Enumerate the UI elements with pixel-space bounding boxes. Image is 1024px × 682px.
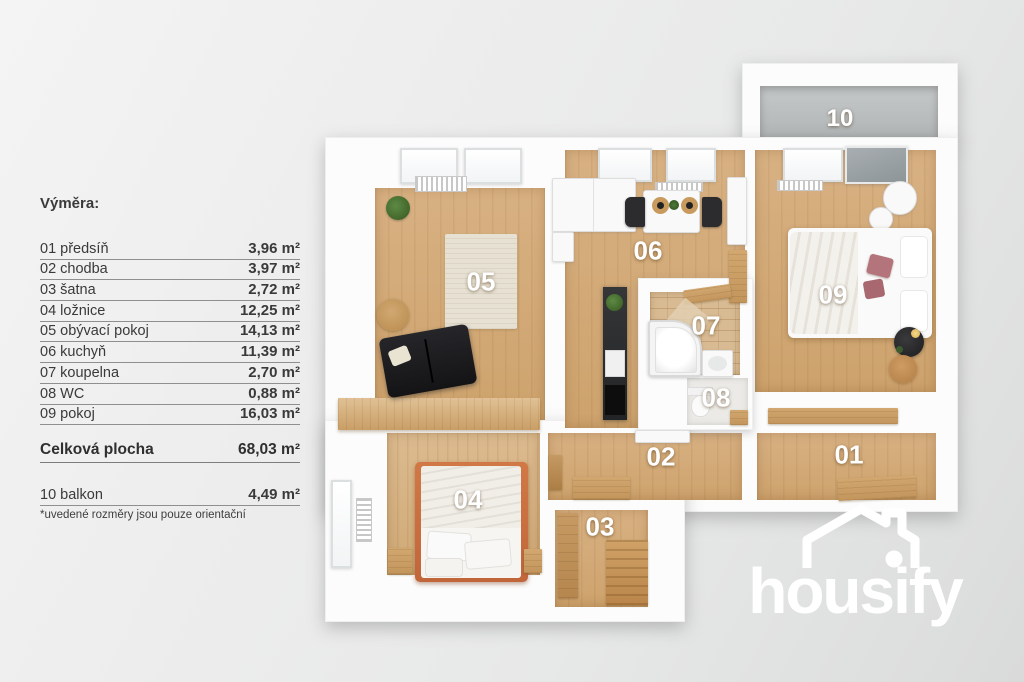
area-legend: Výměra: 01 předsíň3,96 m² 02 chodba3,97 … — [40, 196, 300, 521]
bedroom04-window — [331, 480, 352, 568]
side-table-living — [377, 299, 409, 331]
room-label-04: 04 — [454, 485, 483, 516]
sofa-seat-line — [424, 339, 434, 383]
room-label-08: 08 — [702, 383, 731, 414]
plant-09 — [896, 346, 903, 353]
room-name: 07 koupelna — [40, 365, 119, 381]
kitchen-cabinet-small — [552, 232, 574, 262]
plate-left — [657, 202, 664, 209]
legend-footnote: *uvedené rozměry jsou pouze orientační — [40, 509, 300, 521]
kitchen-cooktop — [605, 385, 625, 415]
hall02-doormat — [573, 477, 630, 499]
living-radiator — [415, 176, 467, 192]
nightstand-04-right — [524, 549, 542, 573]
room-label-10: 10 — [827, 105, 854, 133]
bedroom09-doormat — [768, 408, 898, 424]
bed-09-pillow-top — [900, 236, 928, 278]
room-area: 16,03 m² — [240, 405, 300, 422]
living-window-right — [464, 148, 522, 184]
bed-04-mattress — [421, 466, 521, 578]
legend-row-09: 09 pokoj16,03 m² — [40, 405, 300, 426]
sofa-pillow — [387, 345, 412, 367]
bedroom04-radiator — [356, 498, 372, 542]
kitchen-tall-cabinet — [727, 177, 747, 245]
wc-floor-wood-strip — [730, 410, 748, 425]
room-name: 03 šatna — [40, 282, 96, 298]
cabinet-divider — [593, 179, 594, 231]
plant-living — [386, 196, 410, 220]
room-name: 04 ložnice — [40, 303, 105, 319]
bed-09-pillow-bottom — [900, 290, 928, 332]
housify-wordmark: housify — [727, 559, 983, 623]
room-name: 02 chodba — [40, 261, 108, 277]
closet03-wardrobe — [558, 513, 578, 598]
balcony-door-glass — [845, 146, 908, 184]
hall02-door-panel — [549, 455, 562, 490]
plate-right — [686, 202, 693, 209]
room-name: 09 pokoj — [40, 406, 95, 422]
plant-dining-table — [669, 200, 679, 210]
total-value: 68,03 m² — [238, 441, 300, 459]
legend-row-01: 01 předsíň3,96 m² — [40, 239, 300, 260]
wardrobe-shelf-04 — [338, 398, 540, 430]
kitchen-window-right — [666, 148, 716, 182]
room-area: 4,49 m² — [248, 486, 300, 503]
lamp-09 — [911, 329, 920, 338]
kitchen-cabinet-top — [552, 178, 636, 232]
room-area: 14,13 m² — [240, 322, 300, 339]
legend-title: Výměra: — [40, 196, 300, 212]
housify-logo: housify — [727, 497, 983, 647]
sink-basin — [708, 356, 727, 371]
room-area: 2,72 m² — [248, 281, 300, 298]
room-name: 06 kuchyň — [40, 344, 106, 360]
room-label-05: 05 — [467, 267, 496, 298]
legend-row-06: 06 kuchyň11,39 m² — [40, 342, 300, 363]
bedroom09-window — [783, 148, 843, 182]
plant-kitchen — [606, 294, 623, 311]
legend-row-03: 03 šatna2,72 m² — [40, 280, 300, 301]
legend-row-07: 07 koupelna2,70 m² — [40, 363, 300, 384]
room-label-07: 07 — [692, 311, 721, 342]
legend-rows: 01 předsíň3,96 m² 02 chodba3,97 m² 03 ša… — [40, 239, 300, 425]
room-label-01: 01 — [835, 440, 864, 471]
pouf-09 — [889, 355, 917, 383]
kitchen-fridge — [605, 350, 625, 377]
room-name: 08 WC — [40, 386, 84, 402]
legend-row-02: 02 chodba3,97 m² — [40, 260, 300, 281]
kitchen-window-left — [598, 148, 652, 182]
room-area: 2,70 m² — [248, 364, 300, 381]
dining-chair-left — [625, 197, 645, 227]
room-label-02: 02 — [647, 442, 676, 473]
dining-chair-right — [702, 197, 722, 227]
kitchen-wood-shelf — [729, 250, 747, 303]
pink-pillow-2 — [863, 278, 886, 299]
legend-row-04: 04 ložnice12,25 m² — [40, 301, 300, 322]
room-area: 11,39 m² — [241, 343, 300, 360]
total-label: Celková plocha — [40, 441, 154, 459]
room-label-03: 03 — [586, 512, 615, 543]
bed-09 — [788, 228, 932, 338]
legend-row-05: 05 obývací pokoj14,13 m² — [40, 322, 300, 343]
bed-04-pillow-3 — [425, 558, 463, 577]
bathroom-sink — [702, 350, 733, 377]
room-label-06: 06 — [634, 236, 663, 267]
room-area: 12,25 m² — [240, 302, 300, 319]
bed-04-pillow-2 — [464, 538, 512, 570]
bedroom09-radiator — [777, 180, 823, 191]
floorplan-page: Výměra: 01 předsíň3,96 m² 02 chodba3,97 … — [0, 0, 1024, 682]
room-name: 05 obývací pokoj — [40, 323, 149, 339]
room-area: 0,88 m² — [248, 385, 300, 402]
room-area: 3,96 m² — [248, 240, 300, 257]
room-name: 01 předsíň — [40, 241, 109, 257]
legend-total-row: Celková plocha 68,03 m² — [40, 439, 300, 463]
room-area: 3,97 m² — [248, 260, 300, 277]
closet03-dresser — [606, 540, 648, 605]
pink-pillow-1 — [866, 253, 894, 278]
room-name: 10 balkon — [40, 487, 103, 503]
legend-row-10: 10 balkon 4,49 m² — [40, 485, 300, 506]
legend-row-08: 08 WC0,88 m² — [40, 384, 300, 405]
nightstand-04-left — [388, 548, 412, 574]
room-label-09: 09 — [819, 280, 848, 311]
